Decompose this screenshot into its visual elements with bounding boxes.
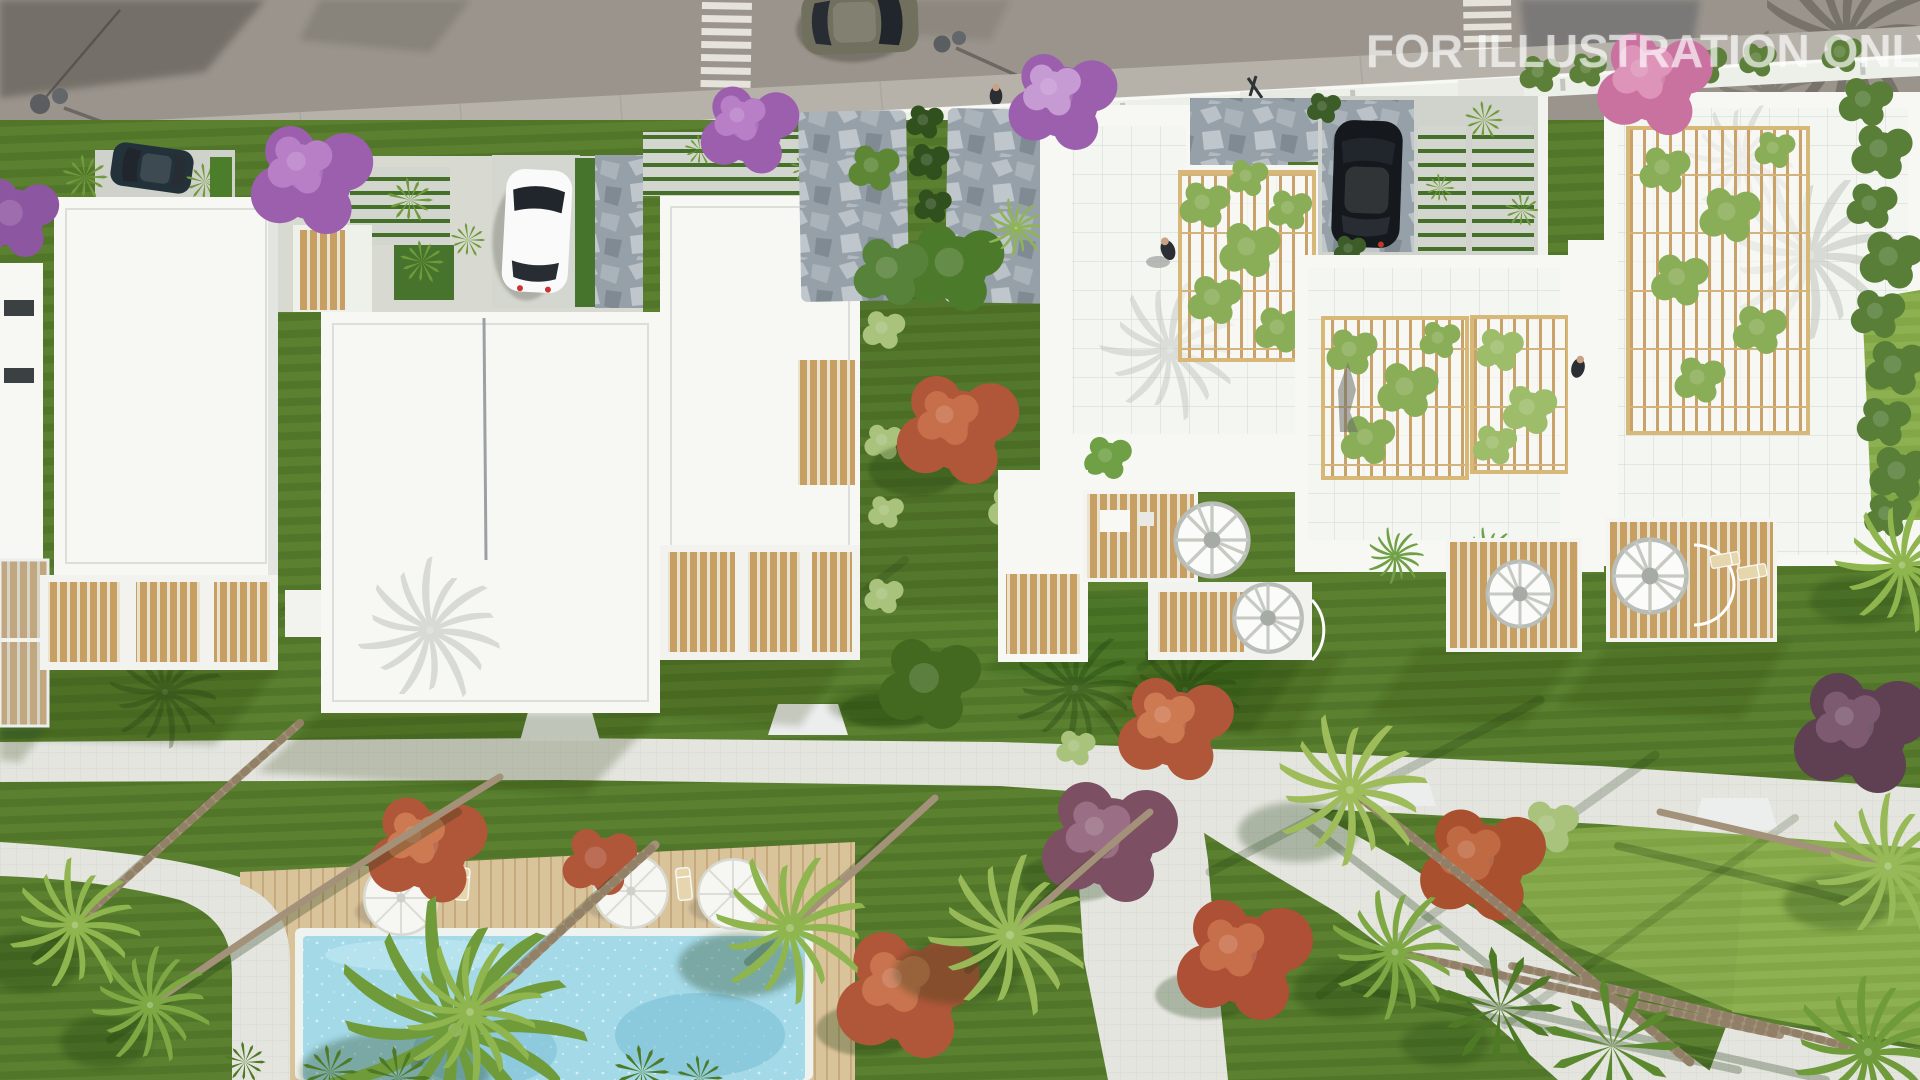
plum-bush-2	[1794, 673, 1920, 793]
pool-lounger-2	[675, 867, 692, 900]
villa-r1	[1053, 98, 1318, 492]
turf-divider	[210, 157, 232, 201]
flagstone-strip	[595, 155, 643, 308]
villa-r1-wing	[998, 470, 1088, 662]
pergola-3	[1472, 317, 1568, 472]
villa-r2	[1295, 255, 1613, 585]
r1-lower-deck	[1148, 582, 1324, 660]
spiral-stair-3	[1488, 562, 1553, 627]
pergola-4	[1628, 128, 1808, 433]
watermark-text: FOR ILLUSTRATION ONLY	[1366, 24, 1920, 78]
r2-r3-decks	[1448, 520, 1775, 650]
villa-c-terrace	[660, 545, 860, 660]
turf-strip	[575, 158, 595, 307]
villa-a-terrace	[40, 575, 278, 670]
spiral-stair-1	[1176, 504, 1249, 577]
aerial-render	[0, 0, 1920, 1080]
planter-box	[293, 225, 372, 312]
walkway-between	[1568, 240, 1604, 572]
villa-b	[285, 312, 660, 718]
villa-b-porch	[285, 590, 321, 637]
villa-a	[54, 197, 278, 575]
parked-black-car	[1331, 119, 1404, 248]
parking-court	[1307, 93, 1548, 264]
render-viewport: FOR ILLUSTRATION ONLY	[0, 0, 1920, 1080]
small-building-west	[0, 263, 43, 560]
spiral-stair-4	[1614, 540, 1687, 613]
villa-c-balcony	[798, 360, 855, 485]
pergola-1	[1180, 160, 1315, 360]
turf-pad	[394, 245, 454, 300]
r1-drive-notch	[1190, 98, 1318, 162]
spiral-stair-2	[1234, 584, 1302, 652]
